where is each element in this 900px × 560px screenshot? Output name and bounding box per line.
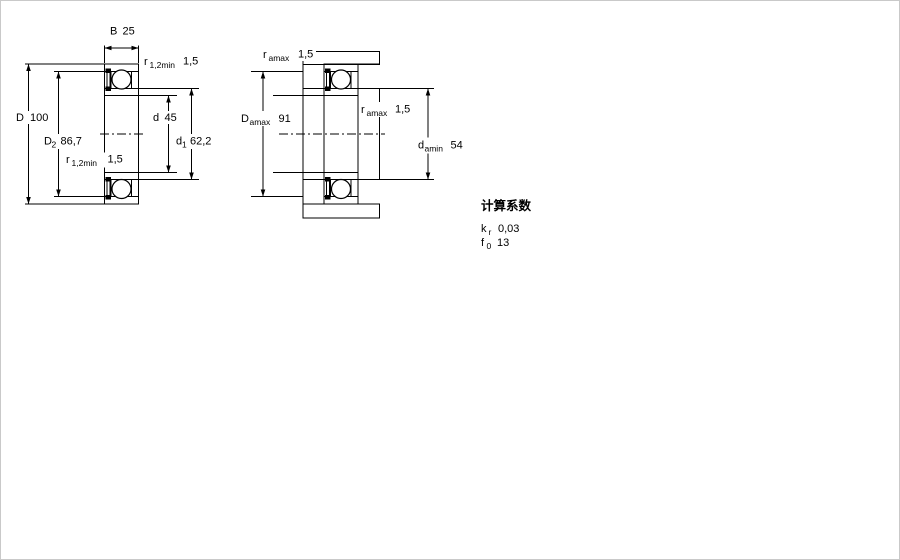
dim-r-symbol: r [66, 154, 70, 166]
dim-damin-value: 54 [451, 140, 463, 152]
factor-f0-value: 13 [497, 237, 509, 249]
seal-mark [106, 177, 112, 200]
dim-Damax: D amax 91 [239, 72, 303, 197]
seal-mark [106, 69, 112, 92]
dim-r-symbol: r [263, 49, 267, 61]
dim-Damax-symbol: D [241, 113, 249, 125]
bearing-section-right [279, 64, 385, 204]
seal-mark [325, 177, 331, 200]
dim-r12min-top: r 1,2min 1,5 [142, 54, 200, 70]
dim-D2: D 2 86,7 [43, 72, 105, 197]
dim-D-symbol: D [16, 112, 24, 124]
dim-D-value: 100 [30, 112, 48, 124]
shaft-shoulder-bottom [303, 173, 324, 180]
factor-kr-symbol: k [481, 223, 487, 235]
dim-r-value: 1,5 [108, 154, 123, 166]
factor-f0-symbol: f [481, 237, 485, 249]
right-view: r amax 1,5 D amax 91 r amax 1,5 d [239, 47, 464, 218]
factor-kr: k r 0,03 [481, 223, 519, 237]
dim-d1-subscript: 1 [182, 140, 187, 150]
dim-ramax-mid: r amax 1,5 [359, 102, 411, 118]
dim-ramax-top: r amax 1,5 [261, 47, 316, 63]
dim-Damax-value: 91 [279, 113, 291, 125]
dim-b-symbol: B [110, 26, 117, 38]
bearing-section-left [100, 64, 143, 204]
dim-r12min-bottom: r 1,2min 1,5 [65, 153, 124, 169]
dim-Damax-subscript: amax [250, 117, 272, 127]
factor-kr-subscript: r [489, 227, 492, 237]
dim-r-subscript: 1,2min [72, 158, 98, 168]
dim-r-subscript: 1,2min [150, 60, 176, 70]
dim-r-subscript: amax [367, 108, 389, 118]
dim-D2-value: 86,7 [61, 136, 82, 148]
dim-b: B 25 [105, 24, 141, 63]
ball [112, 70, 131, 89]
dim-damin-symbol: d [418, 140, 424, 152]
dim-r-symbol: r [361, 104, 365, 116]
dim-d1-value: 62,2 [190, 136, 211, 148]
bearing-drawing: B 25 r 1,2min 1,5 D 100 D 2 86,7 [1, 1, 899, 559]
shaft-shoulder-top [303, 89, 324, 96]
dim-d: d 45 [139, 96, 179, 173]
dim-r-symbol: r [144, 56, 148, 68]
dim-r-value: 1,5 [395, 104, 410, 116]
calc-factors-title: 计算系数 [481, 198, 532, 213]
factor-f0: f 0 13 [481, 237, 509, 251]
ball [112, 180, 131, 199]
dim-D2-subscript: 2 [52, 140, 57, 150]
ball [332, 180, 351, 199]
dim-b-value: 25 [123, 26, 135, 38]
dim-r-value: 1,5 [183, 56, 198, 68]
seal-mark [325, 69, 331, 92]
bearing-drawing-page: B 25 r 1,2min 1,5 D 100 D 2 86,7 [0, 0, 900, 560]
housing-bore-line [358, 64, 380, 180]
dim-r-subscript: amax [269, 53, 291, 63]
dim-d-symbol: d [153, 112, 159, 124]
dim-d1: d 1 62,2 [139, 89, 217, 180]
dim-r-value: 1,5 [298, 49, 313, 61]
left-view: B 25 r 1,2min 1,5 D 100 D 2 86,7 [14, 24, 217, 204]
calculation-factors: 计算系数 k r 0,03 f 0 13 [481, 198, 532, 251]
housing-bottom [303, 204, 380, 218]
dim-d-value: 45 [165, 112, 177, 124]
factor-f0-subscript: 0 [487, 241, 492, 251]
dim-damin-subscript: amin [425, 144, 444, 154]
ball [332, 70, 351, 89]
factor-kr-value: 0,03 [498, 223, 519, 235]
